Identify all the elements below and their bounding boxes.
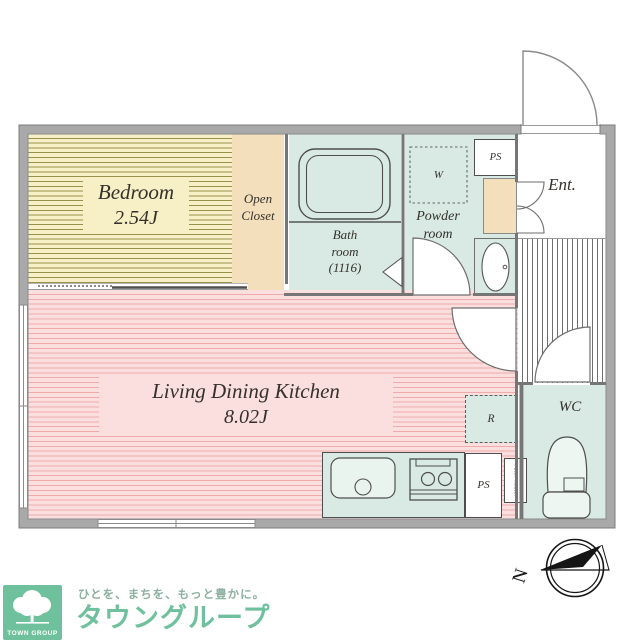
entrance-door-opening — [521, 124, 600, 135]
bottom-window — [98, 520, 255, 528]
compass-north-label: N — [509, 566, 533, 586]
pipe-space-bottom: PS — [465, 453, 502, 518]
compass-icon: N — [509, 540, 610, 597]
bedroom-size: 2.54J — [83, 206, 189, 232]
ldk-label: Living Dining Kitchen 8.02J — [99, 375, 393, 434]
left-window — [20, 305, 28, 508]
bathroom-label: Bath room (1116) — [289, 227, 401, 277]
bedroom-name: Bedroom — [83, 179, 189, 206]
bedroom-sliding-door — [28, 283, 248, 290]
water-heater-box: Water heater — [504, 458, 527, 503]
vanity-sink — [474, 238, 517, 296]
refrigerator-label: R — [487, 412, 494, 427]
ldk-size: 8.02J — [99, 405, 393, 431]
ps-bottom-label: PS — [477, 478, 489, 492]
town-group-logo: TOWN GROUP — [3, 585, 62, 640]
wc-label: WC — [530, 398, 610, 417]
open-closet-label: Open Closet — [228, 191, 288, 224]
floorplan-page: PS R PS Water heater — [0, 0, 640, 640]
bedroom-label: Bedroom 2.54J — [83, 177, 189, 234]
brand-name: タウングループ — [76, 596, 270, 635]
hallway-floor — [518, 238, 606, 383]
tree-icon — [3, 585, 62, 627]
powder-room-label: Powder room — [401, 208, 475, 244]
entrance-label: Ent. — [518, 174, 606, 196]
logo-caption: TOWN GROUP — [3, 630, 62, 637]
ps-top-label: PS — [490, 151, 502, 164]
water-heater-label: Water heater — [513, 463, 519, 497]
entrance-door-arc — [523, 51, 597, 125]
washer-label: W — [410, 147, 467, 203]
pipe-space-top: PS — [474, 139, 517, 176]
kitchen-counter — [322, 452, 465, 518]
shoe-cabinet — [483, 178, 517, 234]
ldk-name: Living Dining Kitchen — [99, 378, 393, 405]
refrigerator-space: R — [465, 395, 517, 443]
